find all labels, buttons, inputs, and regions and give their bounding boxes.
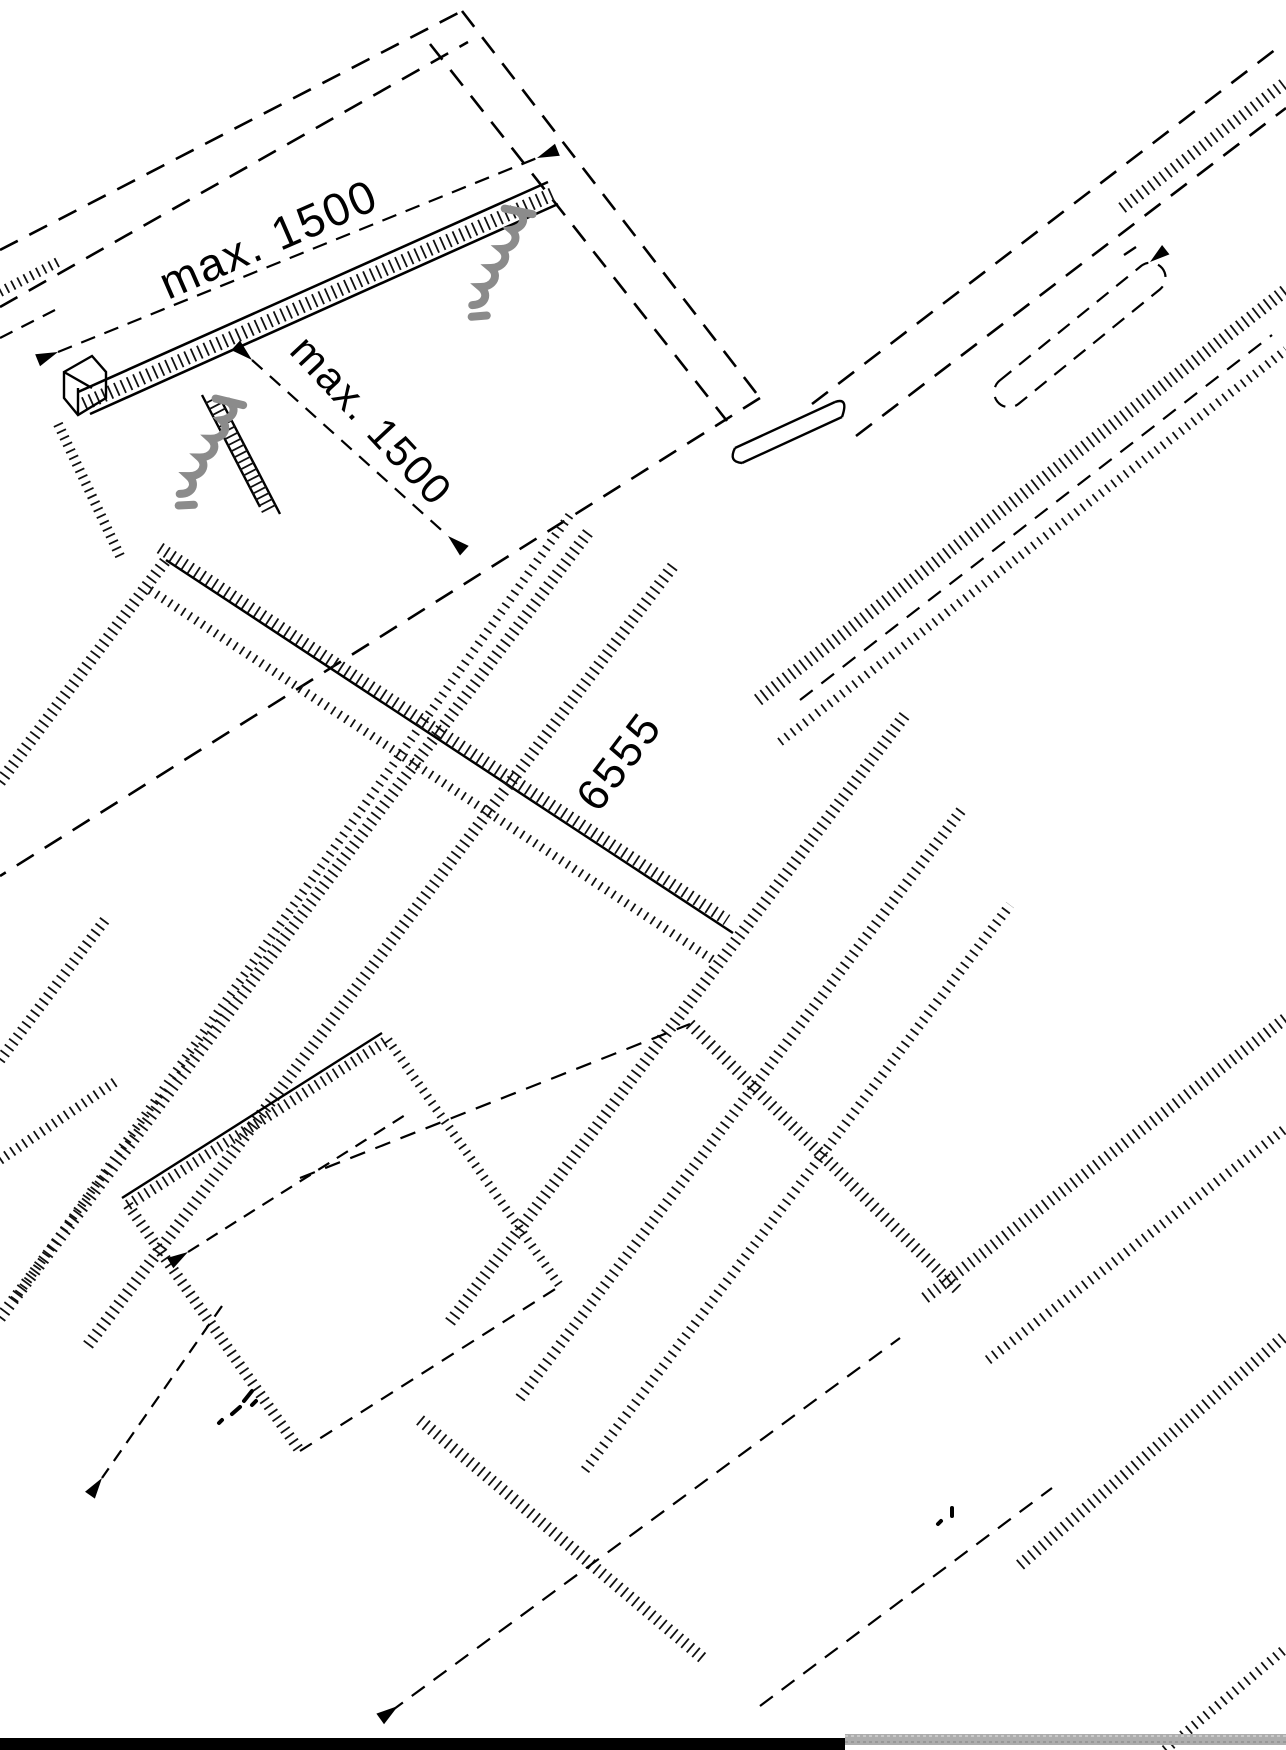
hidden-rail-capsule [988, 245, 1172, 413]
bracket-foot-hatch [58, 424, 120, 556]
cassette-profiles [0, 512, 1010, 1470]
arrowhead [535, 144, 560, 164]
dimension-line-2: max. 1500 [231, 326, 468, 555]
bottom-dimension-lines [376, 1338, 1052, 1724]
valance-panel [122, 1033, 560, 1451]
length-dimension-label: 6555 [567, 703, 672, 820]
arrowhead [444, 531, 469, 555]
technical-drawing-page: max. 1500 max. 1500 [0, 0, 1286, 1750]
arrowhead [1146, 245, 1169, 267]
tiny-dimension-marks [219, 1391, 256, 1423]
valance-dimensions [85, 1112, 410, 1499]
dimension-label-2: max. 1500 [281, 326, 461, 515]
tiny-dimension-marks [938, 1508, 952, 1524]
arrowhead [376, 1701, 401, 1724]
right-panel [758, 82, 1286, 1750]
isometric-awning-diagram: max. 1500 max. 1500 [0, 0, 1286, 1750]
arrowhead [85, 1475, 107, 1499]
page-bottom-bars [0, 1734, 1286, 1750]
rail-end-profile [733, 401, 845, 463]
bottom-black-bar [0, 1738, 845, 1750]
arrowhead [35, 346, 60, 366]
left-edge-profiles [0, 262, 166, 1160]
dimension-line-1: max. 1500 [35, 144, 560, 367]
dimension-label-1: max. 1500 [151, 169, 385, 310]
